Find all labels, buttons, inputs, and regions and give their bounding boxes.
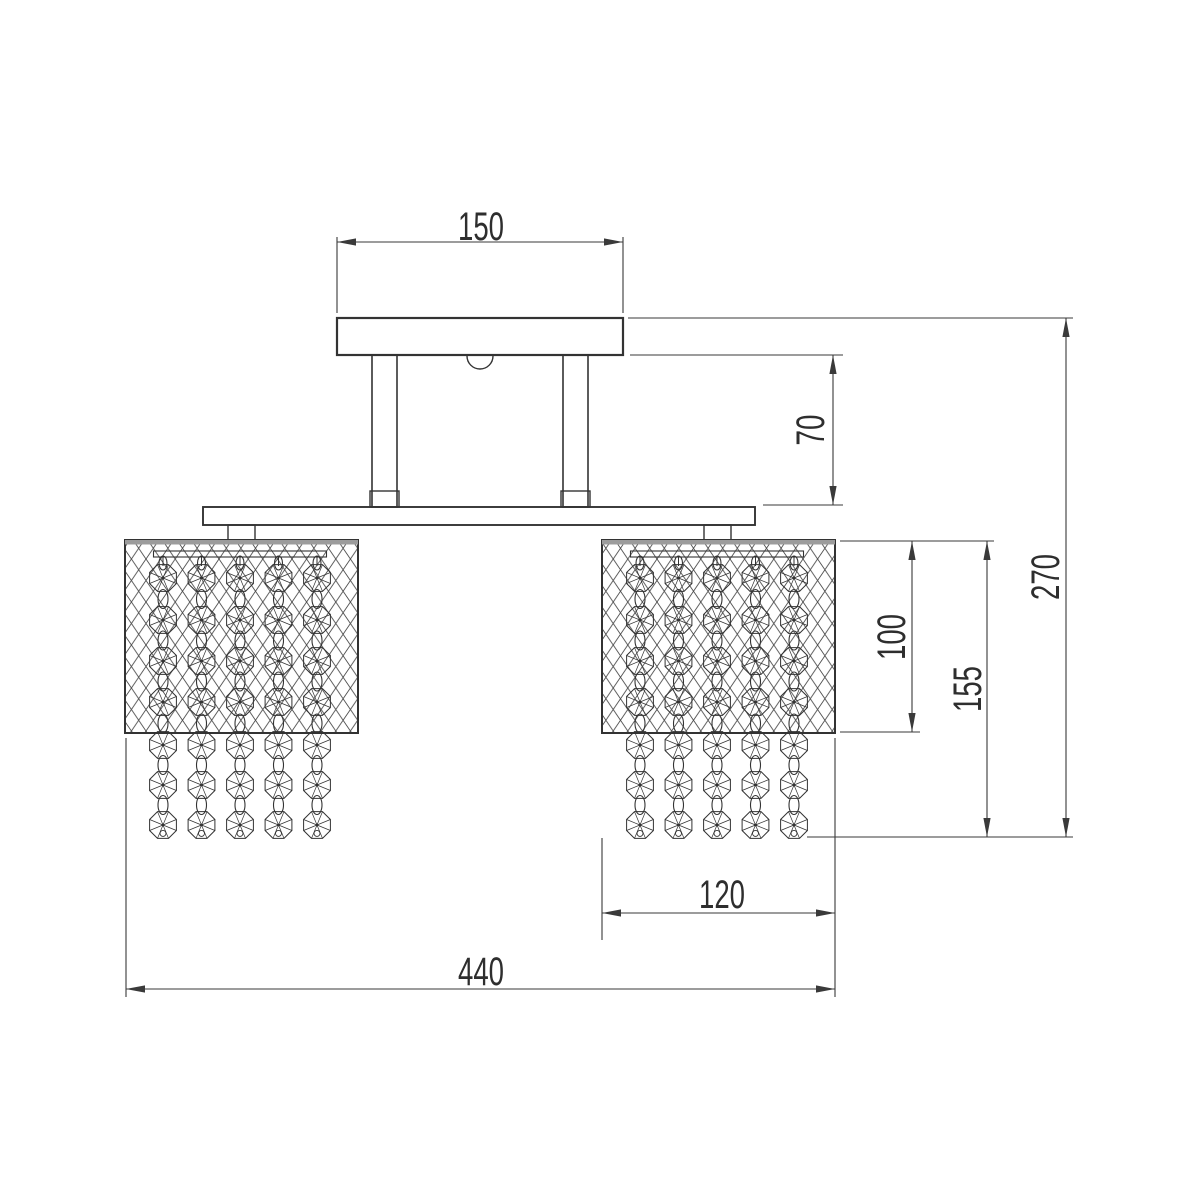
dimension-arrow	[816, 909, 835, 916]
dimension-arrow	[1062, 318, 1069, 337]
dimension-arrow	[604, 238, 623, 245]
dimension-arrow	[983, 541, 990, 560]
dimension-arrow	[337, 238, 356, 245]
dim-drop-canopy-to-bar-label: 70	[789, 415, 833, 446]
canopy-screw-hole	[467, 356, 493, 369]
chandelier-fixture	[125, 318, 835, 838]
dimension-arrow	[1062, 818, 1069, 837]
dim-shade-height-label: 100	[870, 614, 914, 660]
dimension-arrow	[829, 355, 836, 374]
dimension-arrow	[908, 713, 915, 732]
chandelier-elevation-drawing: 15070270100155120440	[0, 0, 1200, 1200]
dim-shade-width-label: 120	[699, 873, 745, 917]
dimension-arrow	[126, 985, 145, 992]
crystal-shade-left	[125, 540, 358, 838]
dim-overall-width: 440	[126, 738, 835, 997]
ceiling-canopy	[337, 318, 623, 355]
dimension-arrow	[908, 541, 915, 560]
dim-shade-plus-pendants: 155	[946, 541, 991, 837]
post-foot-left	[370, 491, 399, 507]
shade-top-strip	[602, 540, 835, 545]
dim-overall-width-label: 440	[458, 950, 504, 994]
shade-top-strip	[125, 540, 358, 545]
dim-drop-canopy-to-bar: 70	[630, 355, 843, 505]
dim-canopy-width: 150	[337, 205, 623, 313]
technical-drawing-canvas: 15070270100155120440	[0, 0, 1200, 1200]
dimension-arrow	[983, 818, 990, 837]
dim-overall-height-label: 270	[1024, 554, 1068, 600]
dim-shade-plus-pendants-label: 155	[946, 666, 990, 712]
dim-canopy-width-label: 150	[458, 205, 504, 249]
dimension-arrow	[816, 985, 835, 992]
dim-shade-width: 120	[602, 838, 835, 940]
arm-bar	[203, 507, 755, 525]
post-foot-right	[561, 491, 590, 507]
crystal-shade-right	[602, 540, 835, 838]
mounting-post-right	[563, 355, 588, 507]
shade-connector-left	[228, 525, 255, 540]
dimension-arrow	[602, 909, 621, 916]
dimension-arrow	[829, 486, 836, 505]
mounting-post-left	[372, 355, 397, 507]
shade-connector-right	[704, 525, 731, 540]
